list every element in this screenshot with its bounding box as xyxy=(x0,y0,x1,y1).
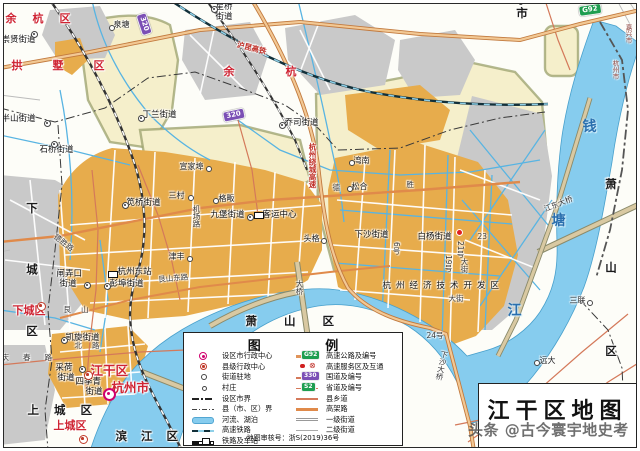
street-1-icon xyxy=(296,415,322,424)
village-marker xyxy=(347,186,354,193)
map-label: 大桥 xyxy=(296,280,304,295)
subdistrict-marker xyxy=(122,202,130,210)
map-label: 滨江区 xyxy=(116,431,193,443)
map-label: 客运中心 xyxy=(263,211,297,220)
legend-item: G92高速公路及编号 xyxy=(296,351,402,362)
map-label: 杭州经济技术开发区 xyxy=(383,282,505,291)
village-marker xyxy=(109,25,116,32)
map-label: 萧山区 xyxy=(246,316,362,328)
map-label: 江 xyxy=(508,304,522,318)
street-seat-icon xyxy=(192,373,218,382)
legend-item: 河流、湖泊 xyxy=(192,415,296,426)
village-marker xyxy=(187,256,194,263)
service-interchange-icon xyxy=(296,362,322,371)
map-label: 街道 xyxy=(58,374,75,383)
legend-item: 县（市、区）界 xyxy=(192,404,296,415)
map-label: 松合 xyxy=(352,183,368,191)
map-label: 半山街道 xyxy=(3,115,36,124)
map-label: 杭州市 xyxy=(612,60,619,80)
map-label: 三联 xyxy=(570,297,586,305)
map-label: 上城区 xyxy=(54,420,87,431)
legend-item: 县乡道 xyxy=(296,393,402,404)
map-label: 街道 xyxy=(60,280,77,289)
legend-item-label: 高速服务区及互通 xyxy=(326,362,384,372)
map-label: 头格 xyxy=(304,235,320,243)
legend-item: 设区市行政中心 xyxy=(192,351,296,362)
map-label: 塘 xyxy=(552,214,566,228)
map-label: 24号 xyxy=(427,332,444,340)
map-label: 江干区 xyxy=(91,365,129,378)
legend-item: S2省道及编号 xyxy=(296,383,402,394)
road-number-badge: 320 xyxy=(222,107,245,122)
legend-item-label: 村庄 xyxy=(222,383,236,393)
map-label: 乔司街道 xyxy=(285,119,319,128)
legend-item: 设区市界 xyxy=(192,393,296,404)
county-road-icon xyxy=(296,394,322,403)
map-label: 三村 xyxy=(169,192,185,200)
map-label: 大街 xyxy=(449,295,464,303)
legend-item-label: 设区市行政中心 xyxy=(222,351,272,361)
map-label: 19号 xyxy=(445,255,453,272)
national-road-icon: 330 xyxy=(296,373,322,382)
map-label: 泉塘 xyxy=(114,21,130,29)
legend-item: 村庄 xyxy=(192,383,296,394)
village-icon xyxy=(192,384,218,393)
village-marker xyxy=(587,300,594,307)
map-label: 艮山 xyxy=(64,306,99,314)
map-label: 钱 xyxy=(583,120,597,134)
map-label: 笕桥街道 xyxy=(127,199,161,208)
map-label: 杭州绕城高速 xyxy=(309,143,317,188)
city-center-icon xyxy=(192,352,218,361)
subdistrict-marker xyxy=(211,6,219,14)
map-label: 胜 xyxy=(407,181,415,189)
map-label: 德 xyxy=(333,184,341,192)
subdistrict-marker xyxy=(44,120,52,128)
map-label: 街道 xyxy=(86,388,103,397)
legend-badge: 330 xyxy=(301,371,320,381)
city-center-marker xyxy=(103,388,116,401)
map-label: 机场路 xyxy=(193,205,201,228)
legend-item-label: 一级街道 xyxy=(326,415,355,425)
map-label: 采荷 xyxy=(56,364,73,373)
subdistrict-marker xyxy=(51,141,59,149)
map-label: 远大 xyxy=(540,357,556,365)
watermark: 头条 @古今寰宇地史考 xyxy=(468,419,629,440)
village-marker xyxy=(349,160,356,167)
map-label: 宣家埠 xyxy=(180,163,204,171)
map-label: 丁兰街道 xyxy=(143,111,177,120)
map-label: 德胜路 xyxy=(52,233,74,253)
legend-badge: S2 xyxy=(301,382,316,392)
map-label: 彭埠街道 xyxy=(110,280,144,289)
village-marker xyxy=(213,198,220,205)
county-center-marker xyxy=(84,371,93,380)
map-label: 拱墅区 xyxy=(12,60,135,71)
map-label: 艮山东路 xyxy=(158,273,189,283)
legend-item-label: 街道驻地 xyxy=(222,372,251,382)
subdistrict-marker xyxy=(84,282,92,290)
map-label: 下沙大桥 xyxy=(434,350,448,381)
map-label: 津丰 xyxy=(169,253,185,261)
legend-item-label: 高架路 xyxy=(326,404,348,414)
legend-item: 一级街道 xyxy=(296,415,402,426)
legend-item-label: 河流、湖泊 xyxy=(222,415,258,425)
legend-item: 街道驻地 xyxy=(192,372,296,383)
county-boundary-icon xyxy=(192,405,218,414)
map-review-number: 地图审核号：浙S(2019)36号 xyxy=(184,433,402,443)
legend-item-label: 县（市、区）界 xyxy=(222,404,272,414)
legend-item-label: 设区市界 xyxy=(222,394,251,404)
road-number-badge: G92 xyxy=(578,3,602,16)
map-label: 21号 xyxy=(457,241,465,258)
map-label: 杭州东站 xyxy=(118,268,152,277)
legend-item-label: 县级行政中心 xyxy=(222,362,265,372)
map-label: 杭州市 xyxy=(112,382,150,395)
map-label: 余杭 xyxy=(224,66,348,77)
legend-item-label: 高速公路及编号 xyxy=(326,351,376,361)
subdistrict-marker xyxy=(31,31,39,39)
legend-item-label: 县乡道 xyxy=(326,394,348,404)
map-label: 九堡街道 xyxy=(211,211,245,220)
village-marker xyxy=(321,238,328,245)
map-label: 江东大桥 xyxy=(543,195,574,213)
map-label: 湾南 xyxy=(354,157,370,165)
elevated-icon xyxy=(296,405,322,414)
service-area-icon xyxy=(456,229,463,236)
map-label: 沪昆高铁 xyxy=(236,41,267,56)
map-label: 庆春路 xyxy=(3,354,66,362)
legend-item: 县级行政中心 xyxy=(192,362,296,373)
railway-station-icon xyxy=(108,271,118,278)
railway-station-icon xyxy=(254,212,264,219)
map-label: 海宁市 xyxy=(516,3,528,20)
map-page: 余杭区拱墅区余杭下城区下城区上城区上城区江干区杭州市萧山区萧山区海宁市嘉兴市杭州… xyxy=(0,0,640,451)
village-marker xyxy=(534,360,541,367)
county-center-marker xyxy=(37,302,46,311)
map-label: 下沙街道 xyxy=(355,231,389,240)
map-label: 星桥 xyxy=(216,3,233,11)
expressway-icon: G92 xyxy=(296,352,322,361)
legend-item: 高架路 xyxy=(296,404,402,415)
map-label: 嘉兴市 xyxy=(625,24,632,44)
map-label: 大街 xyxy=(461,258,469,273)
map-label: 崇贤街道 xyxy=(3,36,36,45)
county-center-icon xyxy=(192,362,218,371)
provincial-road-icon: S2 xyxy=(296,384,322,393)
subdistrict-marker xyxy=(104,283,112,291)
subdistrict-marker xyxy=(138,115,146,123)
legend-item-label: 省道及编号 xyxy=(326,383,362,393)
map-label: 23 xyxy=(478,233,488,241)
map-label: 余杭区 xyxy=(6,13,87,24)
road-number-badge: 320 xyxy=(135,12,152,36)
village-marker xyxy=(206,166,213,173)
legend-box: 图 例 设区市行政中心县级行政中心街道驻地村庄设区市界县（市、区）界河流、湖泊高… xyxy=(183,332,403,446)
map-label: 格畈 xyxy=(219,195,235,203)
subdistrict-marker xyxy=(279,122,287,130)
map-label: 6号 xyxy=(393,242,401,254)
map-label: 北路 xyxy=(75,342,110,350)
subdistrict-marker xyxy=(61,337,69,345)
county-center-marker xyxy=(79,435,88,444)
village-marker xyxy=(188,195,195,202)
legend-badge: G92 xyxy=(301,350,320,360)
river-lake-icon xyxy=(192,415,218,424)
legend-item-label: 国道及编号 xyxy=(326,372,362,382)
map-label: 上城区 xyxy=(28,405,108,417)
city-boundary-icon xyxy=(192,394,218,403)
map-label: 闸弄口 xyxy=(57,270,83,279)
map-label: 街道 xyxy=(216,13,233,22)
map-label: 白杨街道 xyxy=(418,233,452,242)
